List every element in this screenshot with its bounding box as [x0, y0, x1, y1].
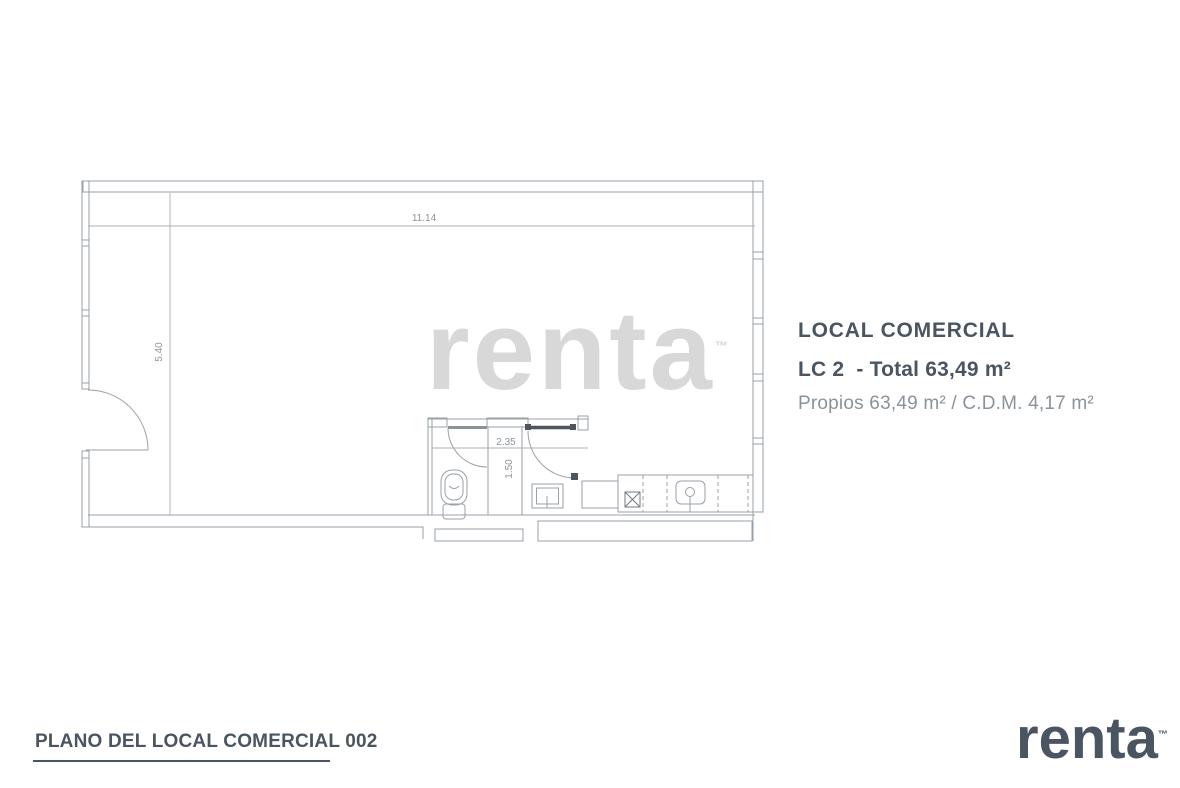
utility-room [582, 481, 618, 508]
entry-door-swing-arc [88, 390, 148, 450]
bathroom-door-1-swing-arc [448, 428, 487, 467]
page: { "plan": { "dim_width": "11.14", "dim_h… [0, 0, 1180, 788]
door-hinge-mark [525, 424, 531, 430]
brand-logo-text: renta [1016, 706, 1158, 771]
dim-label-height: 5.40 [154, 342, 165, 362]
right-wall [753, 181, 763, 541]
door-hinge-mark [570, 424, 576, 430]
shaft-x-box [625, 492, 640, 507]
bathroom-door-1 [448, 428, 487, 468]
trademark-symbol: ™ [1158, 730, 1168, 741]
bathroom-door-2 [525, 424, 578, 480]
outer-walls [82, 181, 763, 541]
unit-title: LOCAL COMERCIAL [798, 319, 1094, 343]
kitchen-area [582, 475, 753, 512]
unit-area-breakdown: Propios 63,49 m² / C.D.M. 4,17 m² [798, 393, 1094, 415]
dim-label-bath-width: 2.35 [496, 437, 516, 448]
footer-caption: PLANO DEL LOCAL COMERCIAL 002 [35, 731, 378, 753]
info-panel: LOCAL COMERCIAL LC 2 - Total 63,49 m² Pr… [798, 319, 1094, 415]
dim-label-width: 11.14 [412, 213, 437, 224]
entry-door [86, 390, 148, 450]
washbasin [532, 484, 563, 508]
main-dimension-lines [88, 193, 755, 515]
bathroom-left-wall [428, 418, 432, 515]
top-wall [83, 181, 763, 192]
footer-underline [33, 760, 330, 762]
kitchen-sink [676, 481, 705, 512]
brand-logo: renta™ [1016, 710, 1168, 768]
door-stop-mark [571, 473, 578, 480]
dim-label-bath-height: 1.50 [504, 459, 515, 479]
unit-total-area: LC 2 - Total 63,49 m² [798, 358, 1094, 382]
toilet [441, 470, 467, 519]
bottom-wall [83, 515, 755, 541]
left-wall [82, 181, 89, 527]
bathroom-door-2-swing-arc [528, 431, 575, 478]
